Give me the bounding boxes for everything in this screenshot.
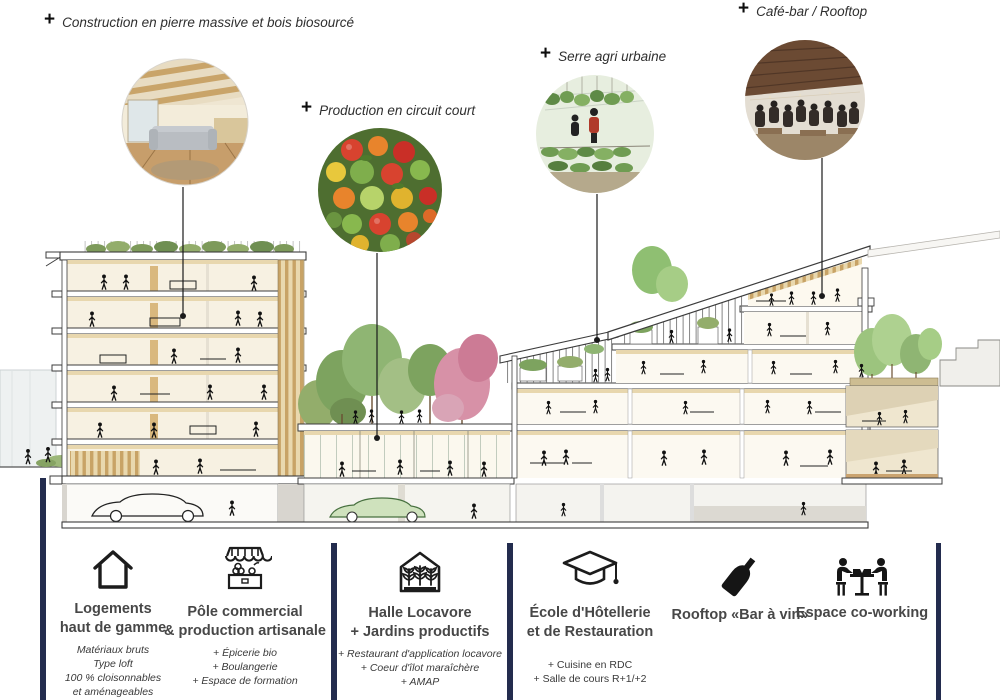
legend-item-coworking: Espace co-working <box>790 552 934 623</box>
legend-detail: + Espace de formation <box>163 674 327 688</box>
house-icon <box>90 546 136 594</box>
legend-detail: + Épicerie bio <box>163 646 327 660</box>
annotation-cafe-bar: + Café-bar / Rooftop <box>738 2 867 19</box>
right-stepped-building <box>500 246 874 522</box>
plus-marker: + <box>44 13 55 27</box>
legend-divider <box>936 543 941 700</box>
section-base-line <box>62 522 868 528</box>
annotation-circuit-court: + Production en circuit court <box>301 101 475 118</box>
legend-title-line: Logements <box>74 601 151 617</box>
legend-item-ecole-hotellerie: École d'Hôtellerie et de Restauration + … <box>512 546 668 686</box>
legend-detail: + Boulangerie <box>163 660 327 674</box>
annotation-serre: + Serre agri urbaine <box>540 47 666 64</box>
basement-parking-middle <box>304 484 510 522</box>
wine-bottle-icon <box>718 552 762 600</box>
legend-item-pole-commercial: Pôle commercial & production artisanale … <box>163 543 327 688</box>
legend-detail: + Coeur d'îlot maraîchère <box>335 661 505 675</box>
legend-title-line: Halle Locavore <box>368 605 471 621</box>
left-residential-building <box>46 241 306 522</box>
rooftop-bar-photo <box>745 40 865 160</box>
co-working-icon <box>833 552 891 598</box>
legend-title-line: École d'Hôtellerie <box>529 605 650 621</box>
market-stall-icon <box>218 543 272 597</box>
courtyard-and-market-hall <box>298 324 514 522</box>
legend-title-line: Espace co-working <box>796 605 928 621</box>
loft-interior-photo <box>99 36 266 185</box>
annotation-label: Construction en pierre massive et bois b… <box>62 13 354 30</box>
plus-marker: + <box>540 47 551 61</box>
legend-item-halle-locavore: Halle Locavore + Jardins productifs + Re… <box>335 546 505 689</box>
courtyard-trees <box>298 324 498 428</box>
legend-detail: + Restaurant d'application locavore <box>335 647 505 661</box>
basement-right <box>516 484 866 522</box>
legend-title-line: haut de gamme <box>60 620 166 636</box>
residential-floors <box>52 260 306 476</box>
plus-marker: + <box>301 101 312 115</box>
annotation-label: Serre agri urbaine <box>558 47 666 64</box>
right-annex-terrace <box>842 314 942 484</box>
legend-title-line: et de Restauration <box>527 624 654 640</box>
legend-title-line: Pôle commercial <box>187 604 302 620</box>
wood-slat-facade <box>278 260 304 484</box>
legend-detail: + Salle de cours R+1/+2 <box>512 672 668 686</box>
graduation-cap-icon <box>558 546 622 598</box>
plus-marker: + <box>738 2 749 16</box>
basement-parking-left <box>62 484 304 522</box>
legend-title-line: & production artisanale <box>164 623 326 639</box>
annotation-label: Café-bar / Rooftop <box>756 2 867 19</box>
legend-detail: + AMAP <box>335 675 505 689</box>
urban-greenhouse-photo <box>536 75 656 195</box>
legend-title-line: Rooftop «Bar à vin» <box>672 607 809 623</box>
market-hall <box>304 431 510 478</box>
legend-title-line: + Jardins productifs <box>351 624 490 640</box>
legend-detail: + Cuisine en RDC <box>512 658 668 672</box>
greenhouse-icon <box>392 546 448 598</box>
annotation-construction: + Construction en pierre massive et bois… <box>44 13 354 30</box>
fresh-vegetables-photo <box>318 128 442 254</box>
annotation-label: Production en circuit court <box>319 101 475 118</box>
